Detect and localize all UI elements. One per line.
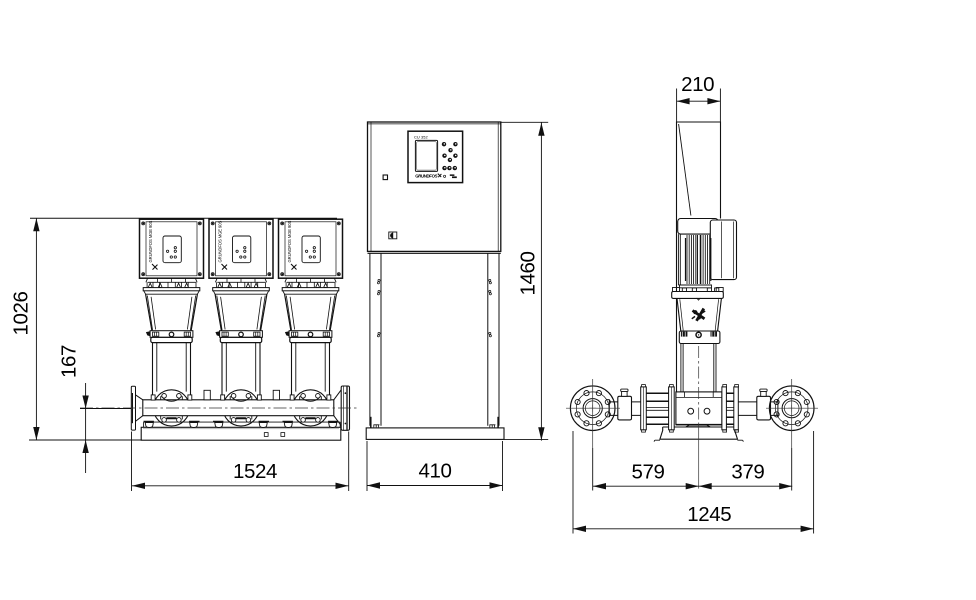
svg-text:1026: 1026 <box>10 291 33 335</box>
svg-text:1524: 1524 <box>233 460 277 483</box>
svg-text:579: 579 <box>631 460 664 483</box>
svg-text:GRUNDFOS: GRUNDFOS <box>415 174 437 179</box>
svg-text:CU 352: CU 352 <box>414 135 428 140</box>
svg-text:1245: 1245 <box>687 503 731 526</box>
svg-text:379: 379 <box>731 460 764 483</box>
svg-text:1460: 1460 <box>517 251 540 295</box>
svg-text:167: 167 <box>58 345 81 378</box>
svg-text:210: 210 <box>681 73 714 96</box>
svg-text:410: 410 <box>418 460 451 483</box>
